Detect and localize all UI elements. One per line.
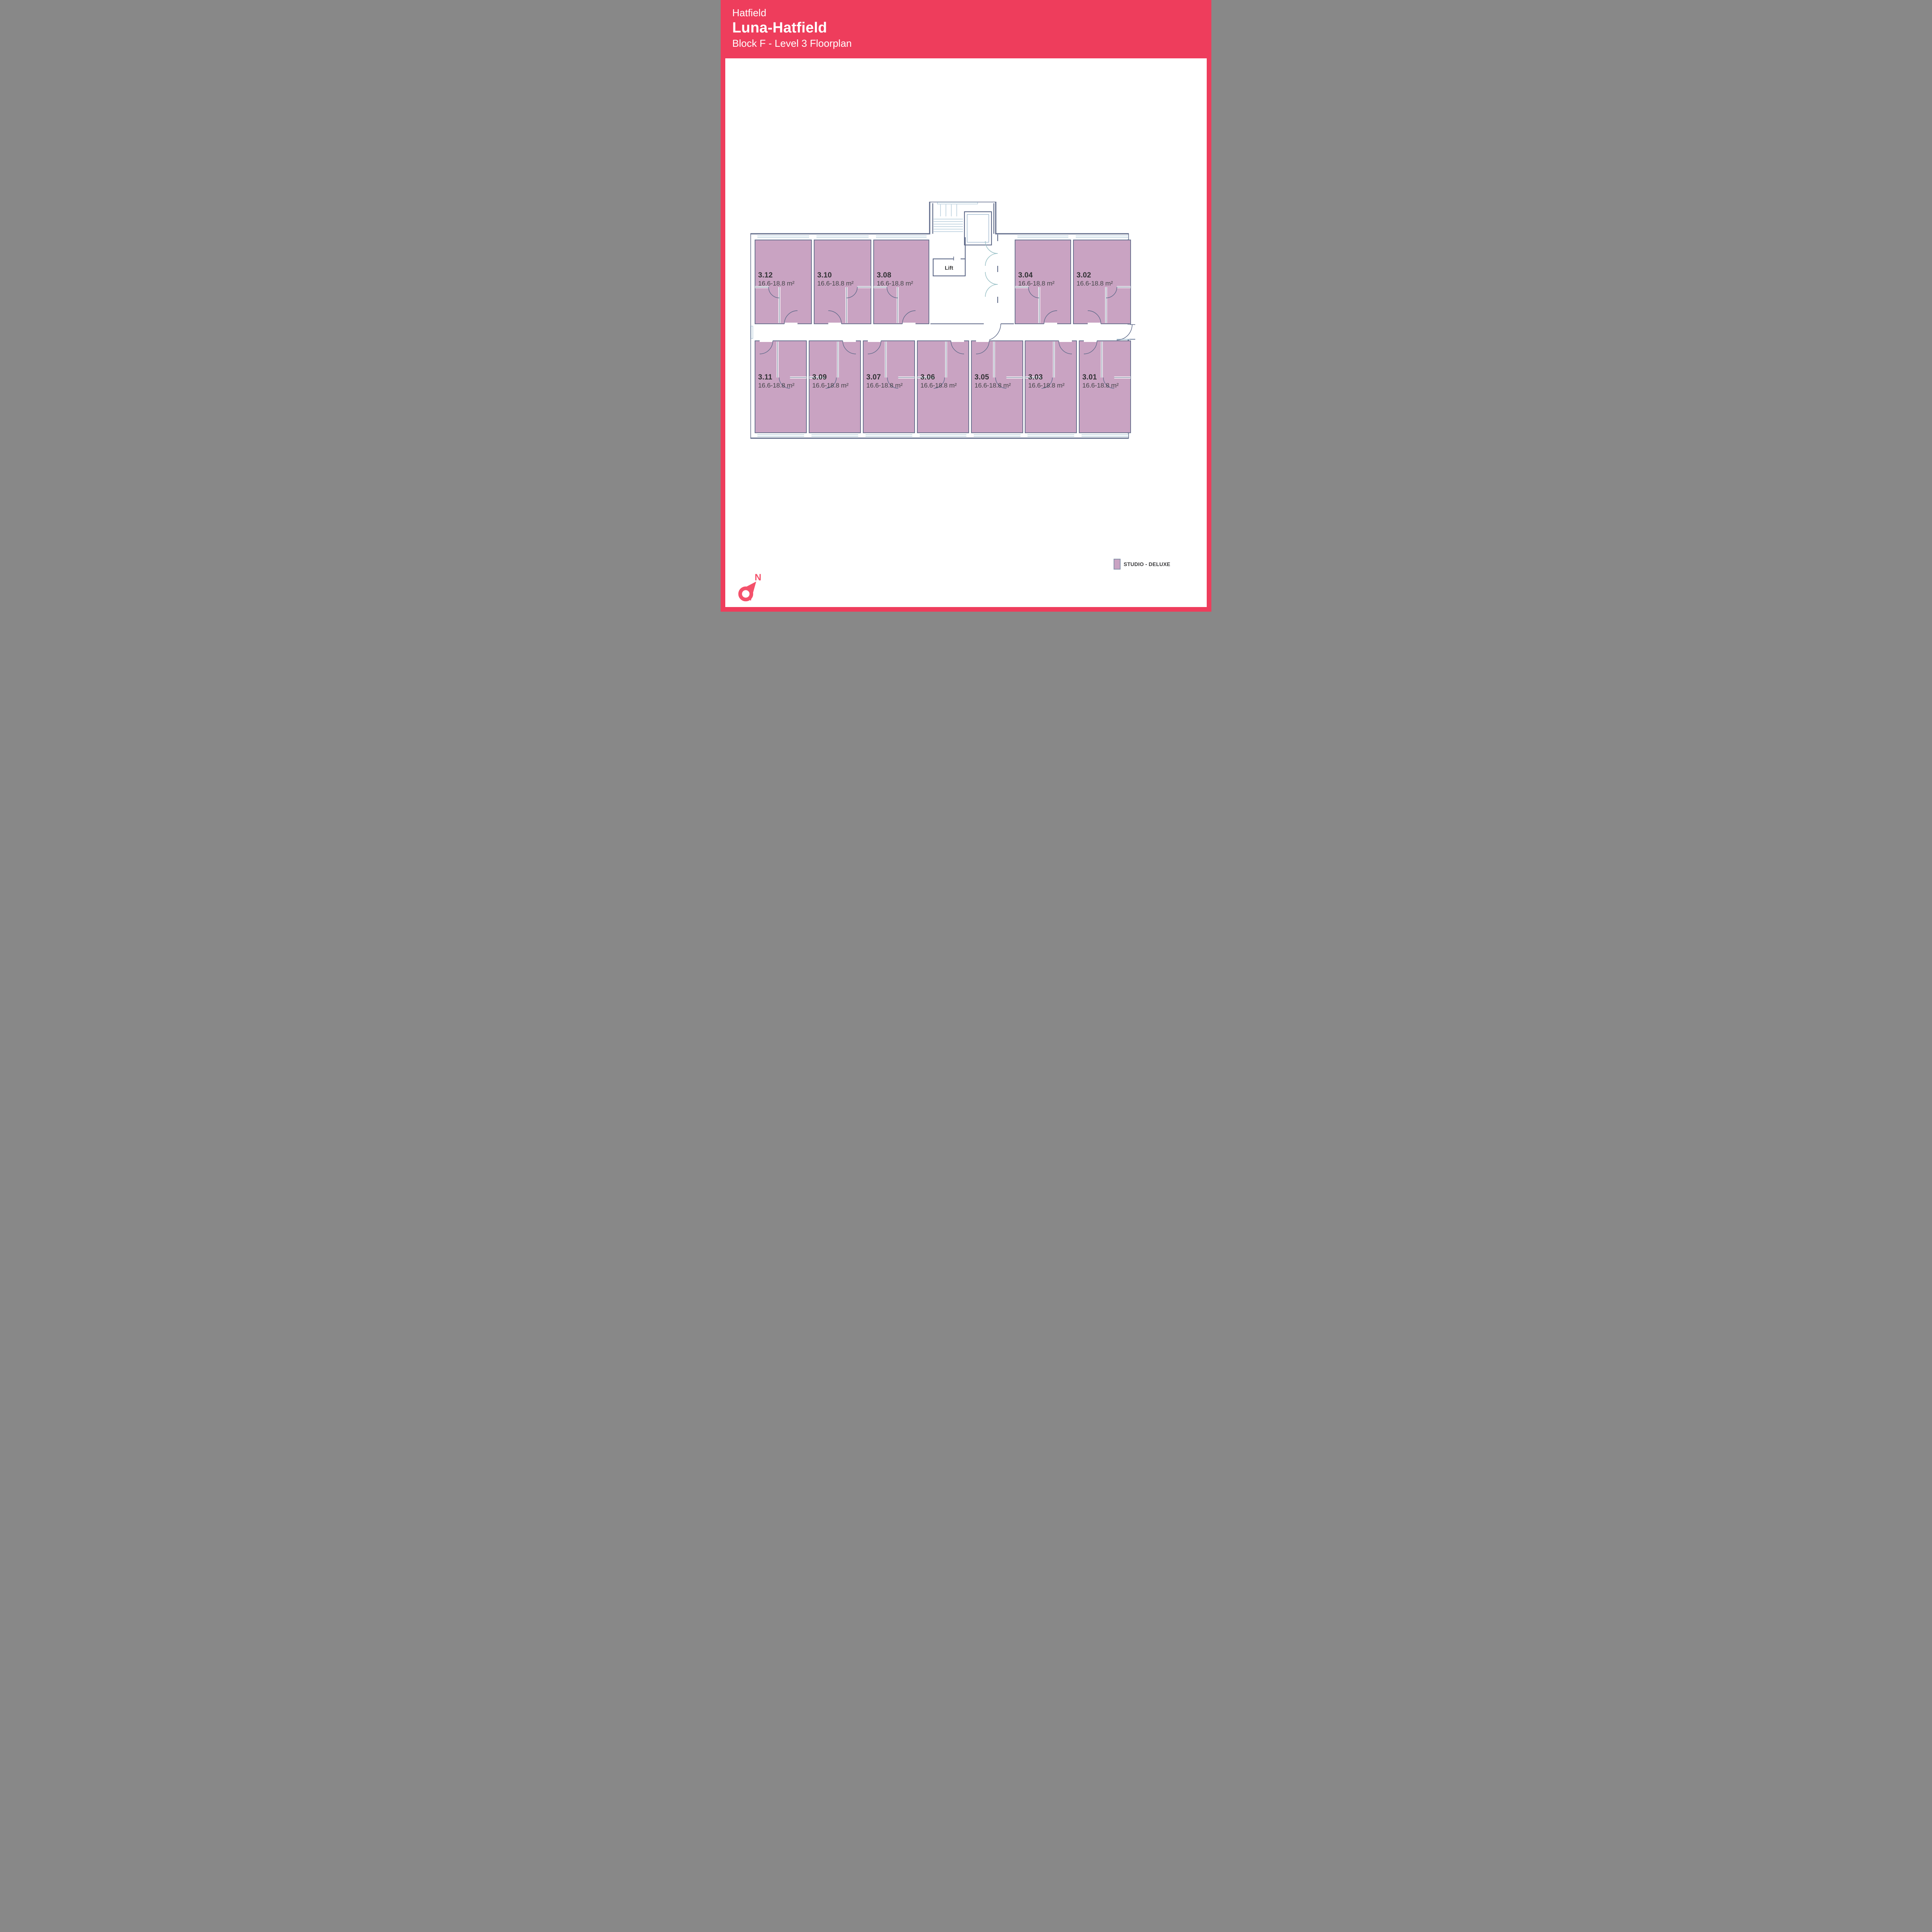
room-area: 16.6-18.8 m² [1077,279,1113,288]
room-label-3.06[interactable]: 3.0616.6-18.8 m² [920,373,957,390]
page: Hatfield Luna-Hatfield Block F - Level 3… [721,0,1211,612]
legend-swatch-studio-deluxe [1114,559,1121,570]
room-number: 3.10 [817,271,854,279]
room-label-3.11[interactable]: 3.1116.6-18.8 m² [758,373,794,390]
room-label-3.03[interactable]: 3.0316.6-18.8 m² [1028,373,1065,390]
room-number: 3.01 [1082,373,1119,381]
page-title: Luna-Hatfield [732,19,827,36]
room-label-3.05[interactable]: 3.0516.6-18.8 m² [975,373,1011,390]
room-label-3.09[interactable]: 3.0916.6-18.8 m² [812,373,849,390]
room-area: 16.6-18.8 m² [920,381,957,390]
room-area: 16.6-18.8 m² [817,279,854,288]
compass-ring-icon [740,588,752,600]
room-area: 16.6-18.8 m² [877,279,913,288]
room-area: 16.6-18.8 m² [1028,381,1065,390]
room-number: 3.02 [1077,271,1113,279]
compass-north-label: N [755,572,761,583]
tower-window [937,202,978,204]
lift-door-gap [954,258,961,260]
room-label-3.08[interactable]: 3.0816.6-18.8 m² [877,271,913,288]
corridor-left-window [751,326,753,338]
room-area: 16.6-18.8 m² [812,381,849,390]
legend-label: STUDIO - DELUXE [1124,561,1170,567]
room-number: 3.11 [758,373,794,381]
header: Hatfield Luna-Hatfield Block F - Level 3… [721,0,1211,58]
room-label-3.04[interactable]: 3.0416.6-18.8 m² [1018,271,1054,288]
elevator-shaft [964,212,992,245]
lift-label: Lift [945,265,953,271]
room-area: 16.6-18.8 m² [866,381,903,390]
room-number: 3.06 [920,373,957,381]
room-area: 16.6-18.8 m² [758,279,794,288]
room-label-3.01[interactable]: 3.0116.6-18.8 m² [1082,373,1119,390]
room-number: 3.09 [812,373,849,381]
room-label-3.10[interactable]: 3.1016.6-18.8 m² [817,271,854,288]
room-label-3.02[interactable]: 3.0216.6-18.8 m² [1077,271,1113,288]
room-label-3.07[interactable]: 3.0716.6-18.8 m² [866,373,903,390]
room-number: 3.04 [1018,271,1054,279]
room-area: 16.6-18.8 m² [1018,279,1054,288]
lift-room: Lift [933,257,965,276]
compass: N [733,567,768,607]
room-number: 3.12 [758,271,794,279]
floorplan-sheet: Lift [725,58,1207,607]
location-label: Hatfield [732,7,766,19]
room-area: 16.6-18.8 m² [975,381,1011,390]
room-area: 16.6-18.8 m² [758,381,794,390]
room-number: 3.08 [877,271,913,279]
room-number: 3.05 [975,373,1011,381]
room-label-3.12[interactable]: 3.1216.6-18.8 m² [758,271,794,288]
floorplan: Lift [750,202,1136,440]
page-subtitle: Block F - Level 3 Floorplan [732,37,852,49]
room-number: 3.07 [866,373,903,381]
floorplan-drawing: Lift [750,202,1136,440]
room-area: 16.6-18.8 m² [1082,381,1119,390]
room-number: 3.03 [1028,373,1065,381]
legend: STUDIO - DELUXE [1114,559,1170,570]
